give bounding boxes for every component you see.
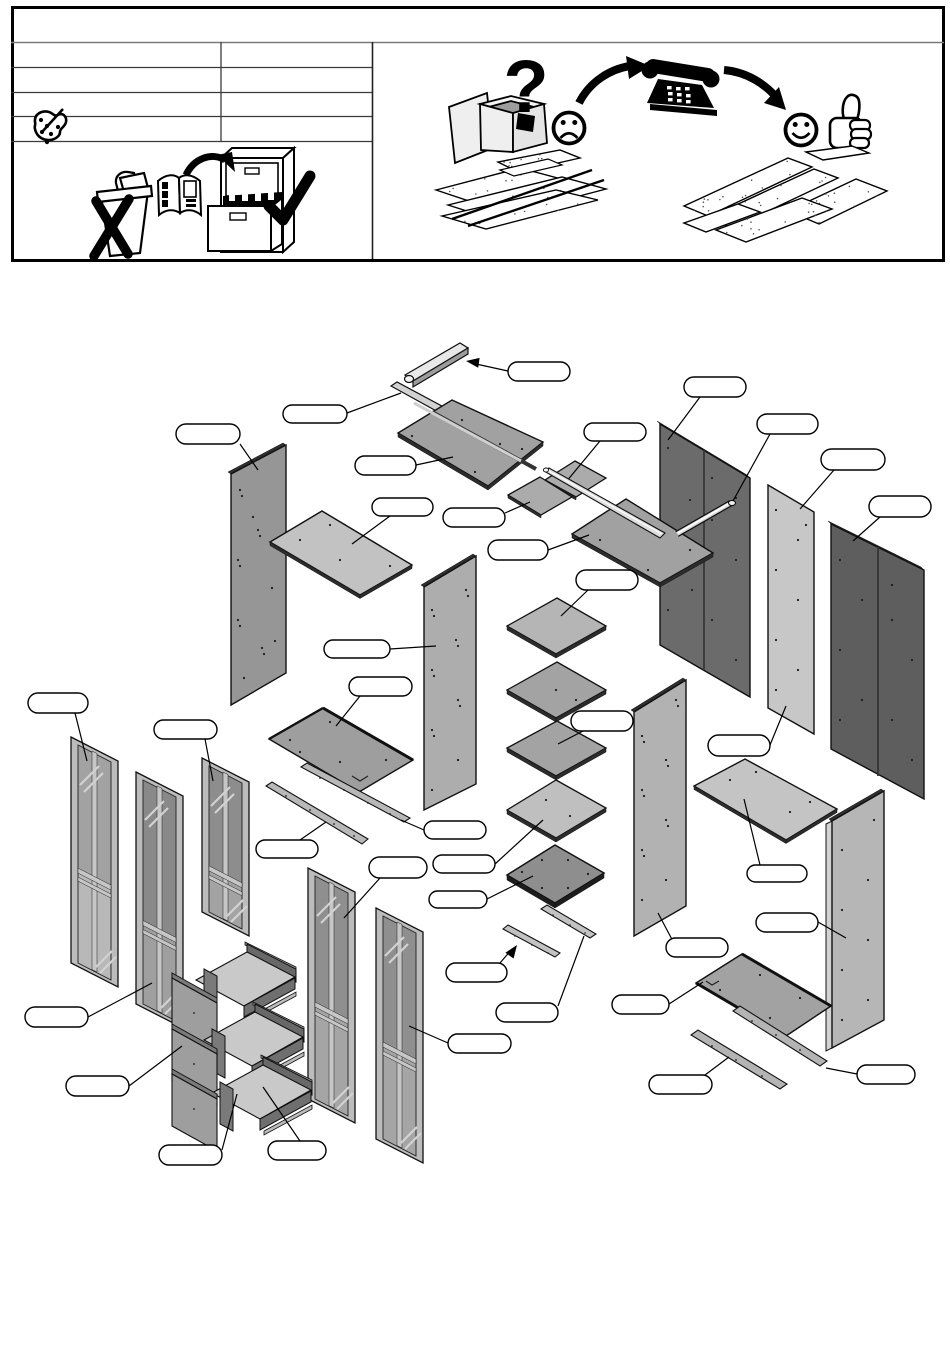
svg-text:?: ?	[503, 45, 548, 128]
